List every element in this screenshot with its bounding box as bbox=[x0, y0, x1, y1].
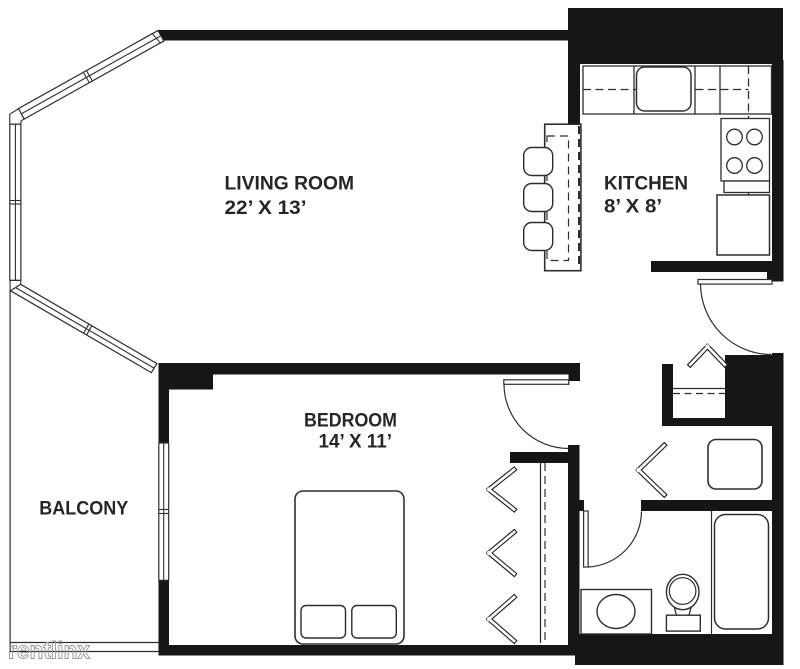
svg-text:BEDROOM: BEDROOM bbox=[304, 410, 397, 431]
svg-text:BALCONY: BALCONY bbox=[39, 498, 128, 519]
svg-text:LIVING ROOM: LIVING ROOM bbox=[225, 173, 355, 194]
svg-text:rentlinx: rentlinx bbox=[8, 638, 91, 665]
svg-text:8’ X 8’: 8’ X 8’ bbox=[604, 197, 662, 218]
svg-text:22’ X 13’: 22’ X 13’ bbox=[225, 198, 307, 219]
svg-text:KITCHEN: KITCHEN bbox=[604, 173, 688, 194]
svg-text:14’ X 11’: 14’ X 11’ bbox=[319, 431, 393, 452]
